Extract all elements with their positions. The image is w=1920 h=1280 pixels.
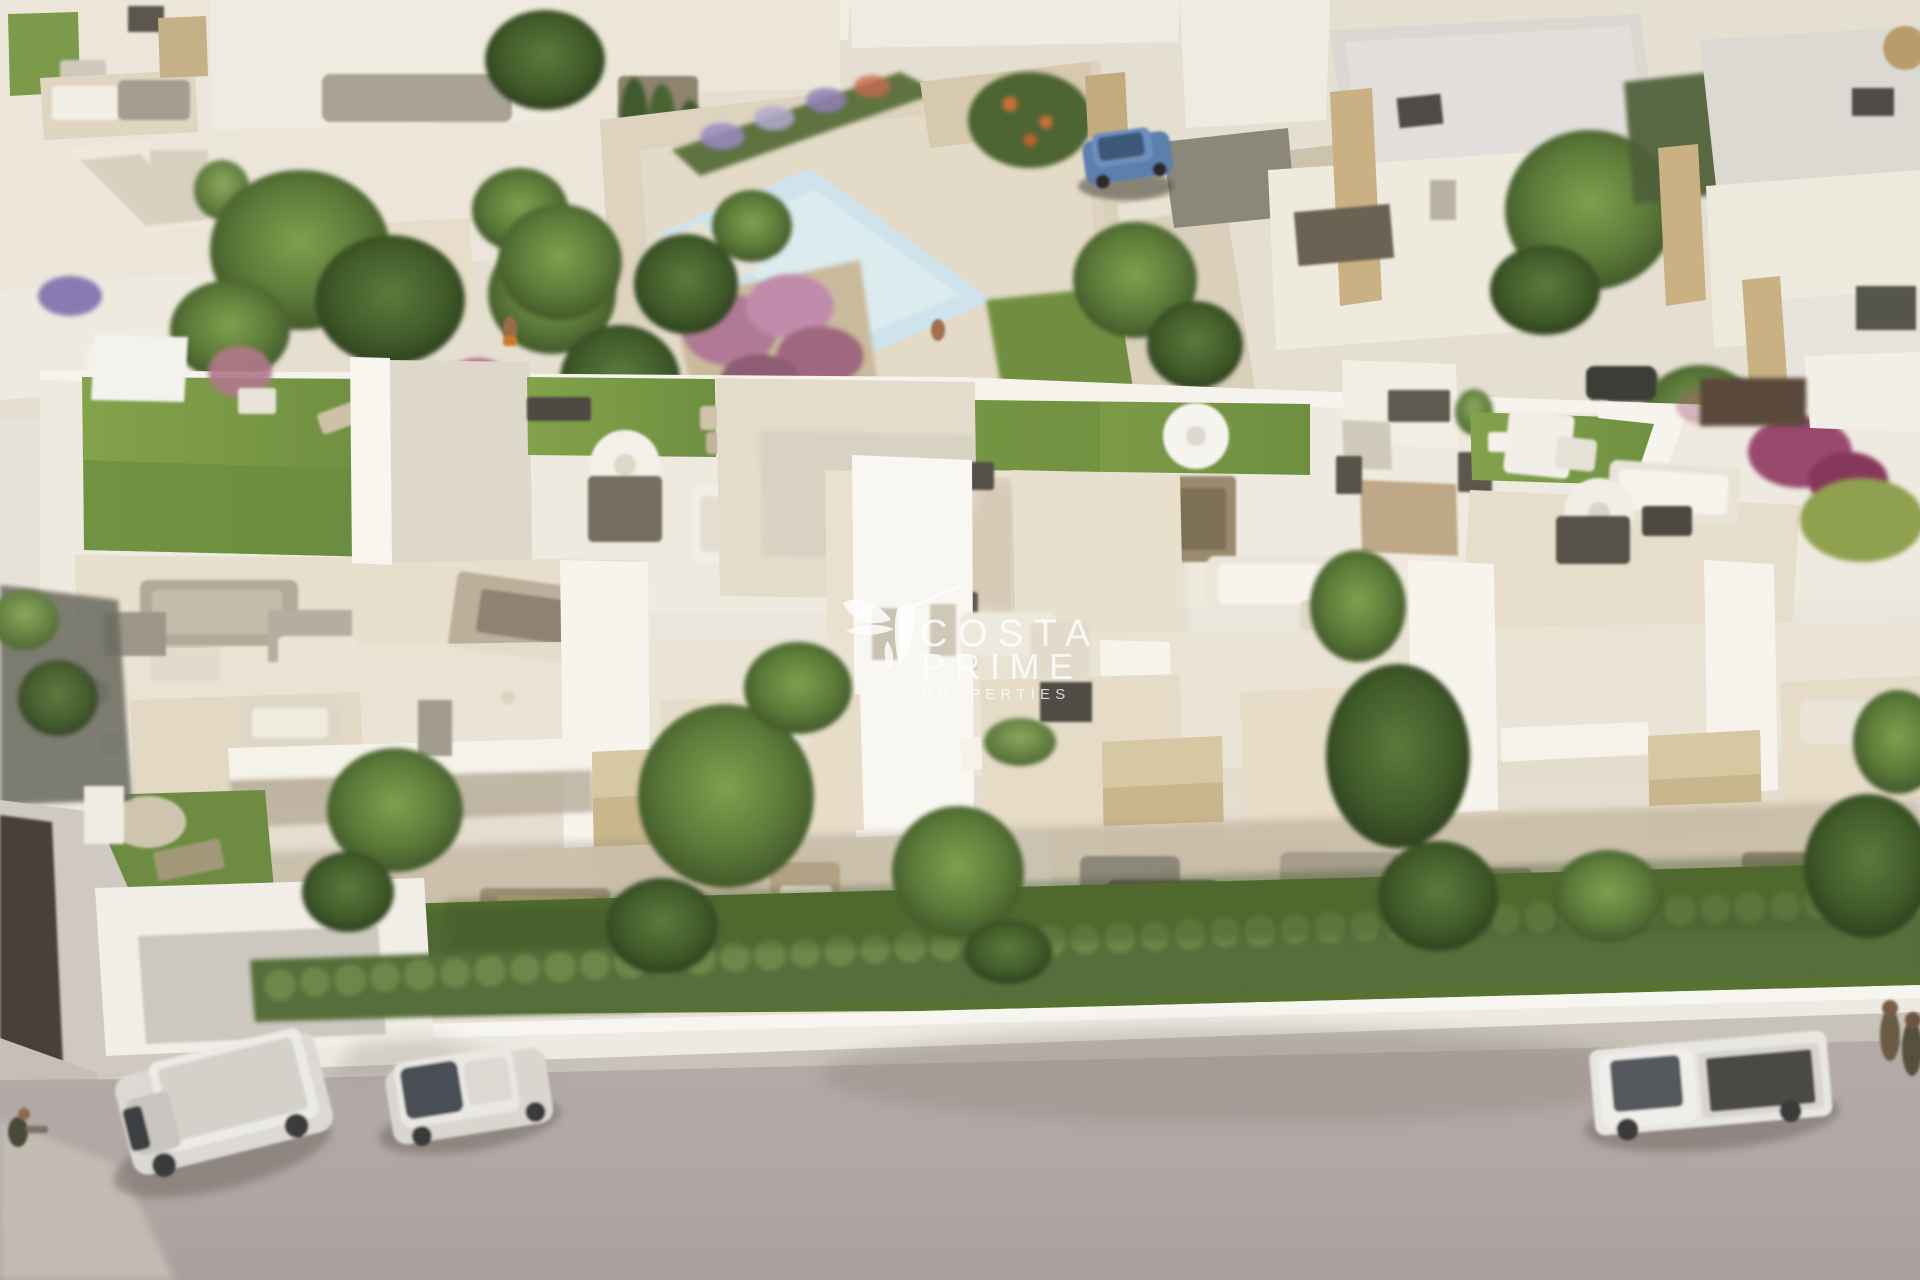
svg-text:PRIME: PRIME — [921, 646, 1083, 687]
svg-text:PROPERTIES: PROPERTIES — [922, 686, 1070, 703]
